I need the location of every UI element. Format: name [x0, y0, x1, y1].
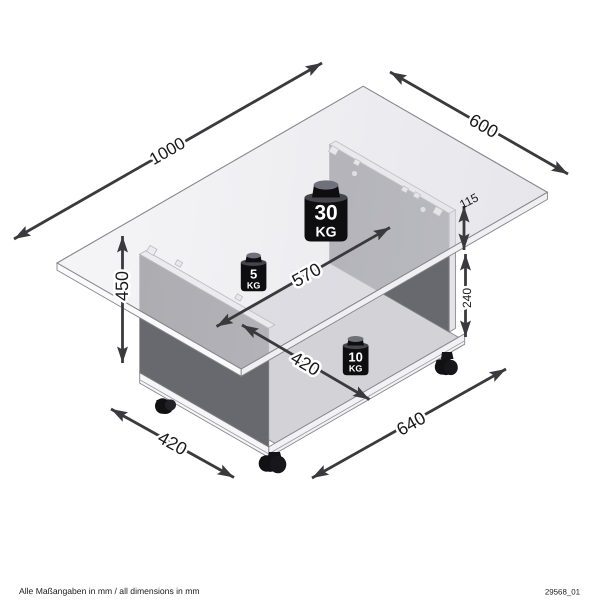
- svg-text:10: 10: [348, 350, 362, 365]
- svg-text:30: 30: [314, 202, 337, 225]
- svg-text:420: 420: [154, 427, 190, 459]
- svg-text:600: 600: [466, 110, 502, 142]
- svg-text:KG: KG: [349, 364, 363, 374]
- svg-text:5: 5: [250, 267, 257, 282]
- svg-text:240: 240: [460, 288, 474, 308]
- svg-text:1000: 1000: [146, 134, 188, 169]
- svg-text:450: 450: [112, 271, 132, 301]
- svg-text:Alle Maßangaben in mm / all di: Alle Maßangaben in mm / all dimensions i…: [19, 586, 200, 596]
- svg-text:KG: KG: [247, 281, 261, 291]
- svg-text:29568_01: 29568_01: [545, 588, 580, 597]
- svg-text:640: 640: [393, 408, 429, 440]
- svg-text:KG: KG: [316, 224, 337, 240]
